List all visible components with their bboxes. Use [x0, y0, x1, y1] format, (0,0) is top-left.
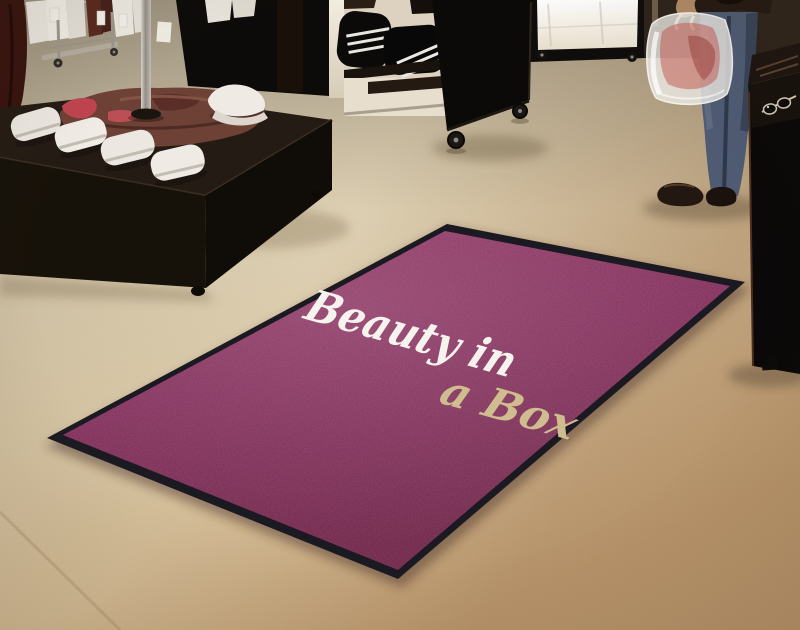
store-scene: Beauty in a Box	[0, 0, 800, 630]
store-photo: Beauty in a Box	[0, 0, 800, 630]
photo-vignette	[0, 0, 800, 630]
